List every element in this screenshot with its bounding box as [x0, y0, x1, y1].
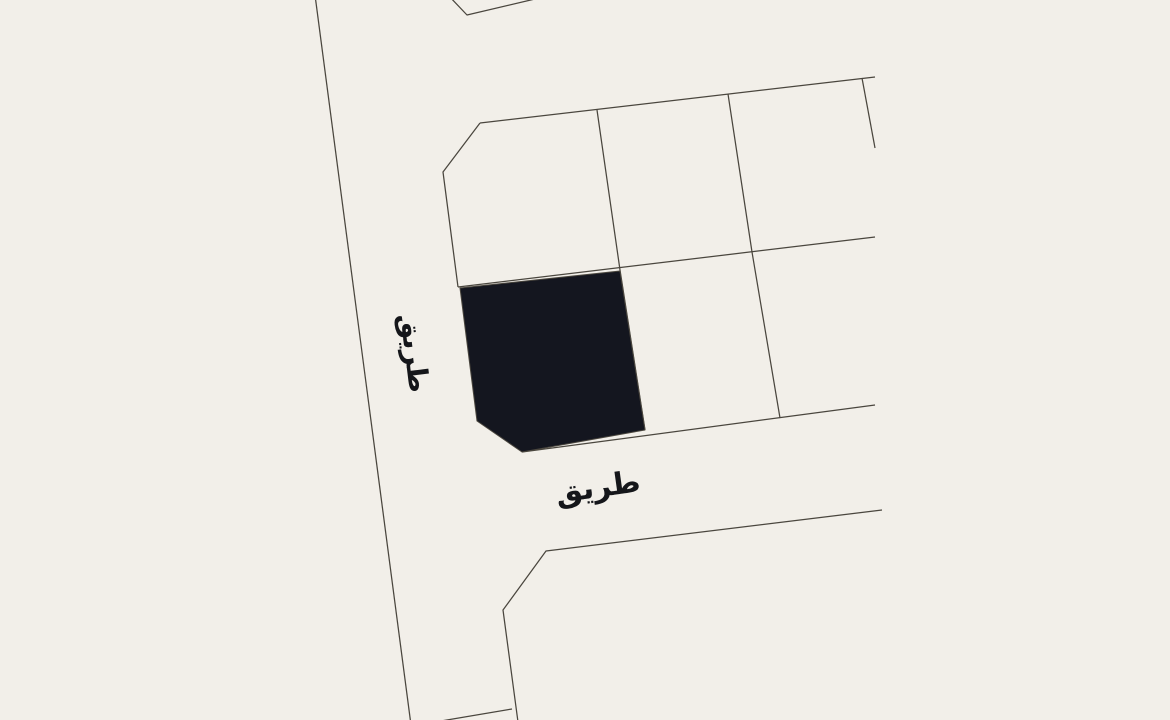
top-parcel-notch [448, 0, 552, 15]
lower-block-divider [435, 709, 512, 720]
parcel-divider-3 [862, 78, 875, 148]
road-label-vertical: طريق [395, 312, 432, 394]
lower-block-edge [503, 510, 882, 720]
west-road-edge [315, 0, 411, 720]
block-north-edge [480, 77, 875, 123]
block-mid-boundary [458, 237, 875, 287]
block-northwest-edge [443, 123, 480, 287]
map-canvas[interactable]: طريق طريق [0, 0, 1170, 720]
parcel-divider-2 [728, 94, 780, 418]
highlighted-parcel[interactable] [460, 271, 645, 452]
parcel-map-layer [0, 0, 1170, 720]
